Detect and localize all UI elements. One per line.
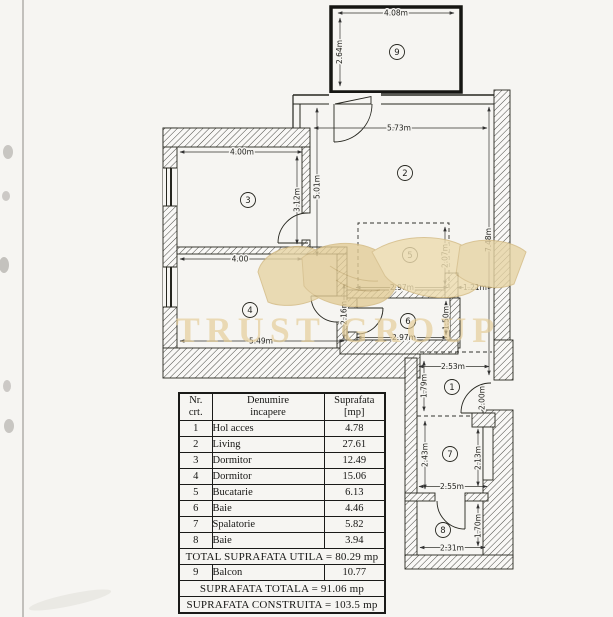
room-label-bedroom3: 3 — [241, 193, 256, 208]
dim-living-width: 5.73m — [387, 124, 411, 133]
lower-bottom-wall — [405, 555, 513, 569]
row-nr: 2 — [179, 437, 212, 453]
row-area: 12.49 — [324, 453, 385, 469]
svg-text:7: 7 — [447, 450, 452, 460]
row-name: Baie — [212, 533, 324, 549]
dim-balcony-width: 4.08m — [384, 9, 408, 18]
construita-row: SUPRAFATA CONSTRUITA = 103.5 mp — [179, 597, 385, 614]
dim-bath8-width: 2.31m — [440, 544, 464, 553]
row-name: Balcon — [212, 565, 324, 581]
room-label-hall: 1 — [445, 380, 460, 395]
row-nr: 8 — [179, 533, 212, 549]
hall-laundry-chunk — [472, 413, 495, 427]
table-row: 2 Living 27.61 — [179, 437, 385, 453]
row-nr: 3 — [179, 453, 212, 469]
wall-7-8-right — [465, 493, 488, 501]
row-name: Bucatarie — [212, 485, 324, 501]
dim-bedroom4-top-width: 4.00 — [232, 255, 249, 264]
dim-laundry-left-height: 2.43m — [421, 443, 430, 467]
wall-bed3-living — [302, 147, 310, 213]
total-label: SUPRAFATA TOTALA = 91.06 mp — [179, 581, 385, 597]
wall-7-8-left — [405, 493, 435, 501]
dim-left-inner-height: 5.01m — [313, 175, 322, 199]
scanned-floor-plan-page: 4.08m 2.64m 5.73m 7.48m 4.00m 3.12m 5.01… — [0, 0, 613, 617]
laundry-right-notch — [483, 427, 493, 480]
row-nr: 6 — [179, 501, 212, 517]
row-nr: 7 — [179, 517, 212, 533]
row-area: 3.94 — [324, 533, 385, 549]
row-area: 27.61 — [324, 437, 385, 453]
dim-bath8-height: 1.70m — [474, 514, 483, 538]
bedroom3-top-wall — [163, 128, 310, 147]
header-name: Denumire incapere — [212, 393, 324, 421]
table-row: 6 Baie 4.46 — [179, 501, 385, 517]
room-label-living: 2 — [398, 166, 413, 181]
header-area: Suprafata [mp] — [324, 393, 385, 421]
row-name: Spalatorie — [212, 517, 324, 533]
entrance-door — [461, 383, 491, 413]
row-nr: 4 — [179, 469, 212, 485]
lower-left-wall — [405, 358, 417, 558]
header-nr: Nr. crt. — [179, 393, 212, 421]
room-label-balcony: 9 — [390, 45, 405, 60]
right-wall — [494, 90, 510, 340]
row-name: Living — [212, 437, 324, 453]
watermark-text: TRUST GROUP — [176, 310, 500, 350]
dim-bedroom3-height: 3.12m — [293, 188, 302, 212]
table-header-row: Nr. crt. Denumire incapere Suprafata [mp… — [179, 393, 385, 421]
table-row: 3 Dormitor 12.49 — [179, 453, 385, 469]
total-utila-label: TOTAL SUPRAFATA UTILA = 80.29 mp — [179, 549, 385, 565]
row-area: 10.77 — [324, 565, 385, 581]
dim-hall-width: 2.53m — [441, 362, 465, 371]
table-row: 1 Hol acces 4.78 — [179, 421, 385, 437]
svg-text:2: 2 — [402, 169, 407, 179]
bedroom3-door — [278, 213, 308, 243]
svg-text:8: 8 — [440, 526, 445, 536]
dim-bedroom3-width: 4.00m — [230, 148, 254, 157]
table-row: 8 Baie 3.94 — [179, 533, 385, 549]
paper-artifacts — [0, 0, 112, 617]
construita-label: SUPRAFATA CONSTRUITA = 103.5 mp — [179, 597, 385, 614]
dim-balcony-depth: 2.64m — [335, 40, 344, 64]
areas-table: Nr. crt. Denumire incapere Suprafata [mp… — [178, 392, 386, 614]
row-nr: 5 — [179, 485, 212, 501]
bath8-door — [437, 501, 465, 529]
row-name: Dormitor — [212, 453, 324, 469]
dim-laundry-right-height: 2.13m — [474, 446, 483, 470]
row-area: 5.82 — [324, 517, 385, 533]
balcony-door — [334, 97, 372, 143]
table-row: 7 Spalatorie 5.82 — [179, 517, 385, 533]
total-row: SUPRAFATA TOTALA = 91.06 mp — [179, 581, 385, 597]
row-name: Baie — [212, 501, 324, 517]
svg-text:9: 9 — [394, 48, 399, 58]
dim-laundry-width: 2.55m — [440, 482, 464, 491]
total-utila-row: TOTAL SUPRAFATA UTILA = 80.29 mp — [179, 549, 385, 565]
table-row-balcon: 9 Balcon 10.77 — [179, 565, 385, 581]
row-nr: 1 — [179, 421, 212, 437]
table-row: 5 Bucatarie 6.13 — [179, 485, 385, 501]
room-label-bath8: 8 — [436, 523, 451, 538]
dim-entrance-height: 2.00m — [478, 386, 487, 410]
table-row: 4 Dormitor 15.06 — [179, 469, 385, 485]
svg-text:1: 1 — [449, 383, 454, 393]
row-area: 15.06 — [324, 469, 385, 485]
row-area: 4.46 — [324, 501, 385, 517]
row-name: Dormitor — [212, 469, 324, 485]
dim-hall-height: 1.79m — [420, 374, 429, 398]
bedroom3-window — [163, 168, 177, 206]
row-nr: 9 — [179, 565, 212, 581]
row-name: Hol acces — [212, 421, 324, 437]
bedroom4-window — [163, 267, 177, 307]
svg-text:3: 3 — [245, 196, 250, 206]
room-label-laundry: 7 — [443, 447, 458, 462]
row-area: 6.13 — [324, 485, 385, 501]
row-area: 4.78 — [324, 421, 385, 437]
